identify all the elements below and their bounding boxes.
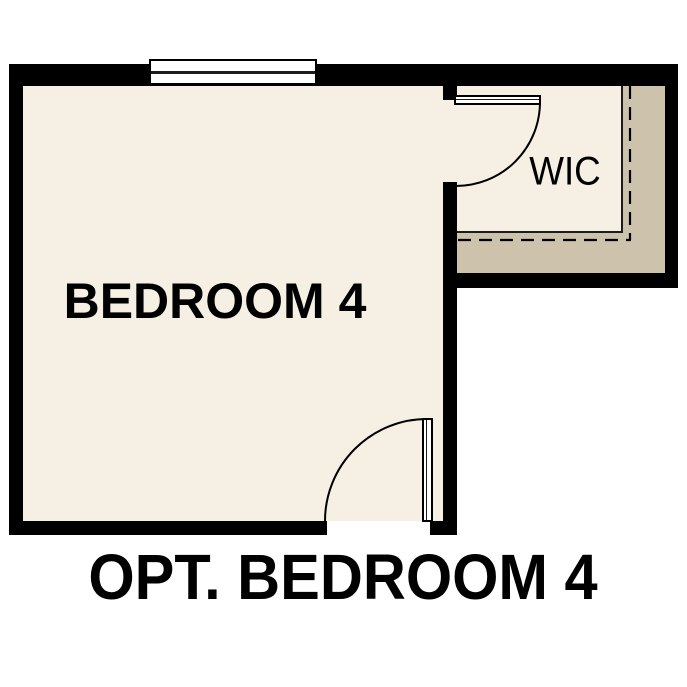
plan-caption: OPT. BEDROOM 4 [88, 540, 597, 614]
floor-plan: BEDROOM 4 WIC OPT. BEDROOM 4 [0, 0, 687, 687]
bedroom-room-label: BEDROOM 4 [64, 272, 367, 330]
wic-door-swing-arc [456, 102, 540, 186]
bedroom-door-leaf [423, 419, 432, 521]
wic-room-label: WIC [529, 150, 601, 195]
bedroom-door-swing-arc [325, 419, 427, 521]
